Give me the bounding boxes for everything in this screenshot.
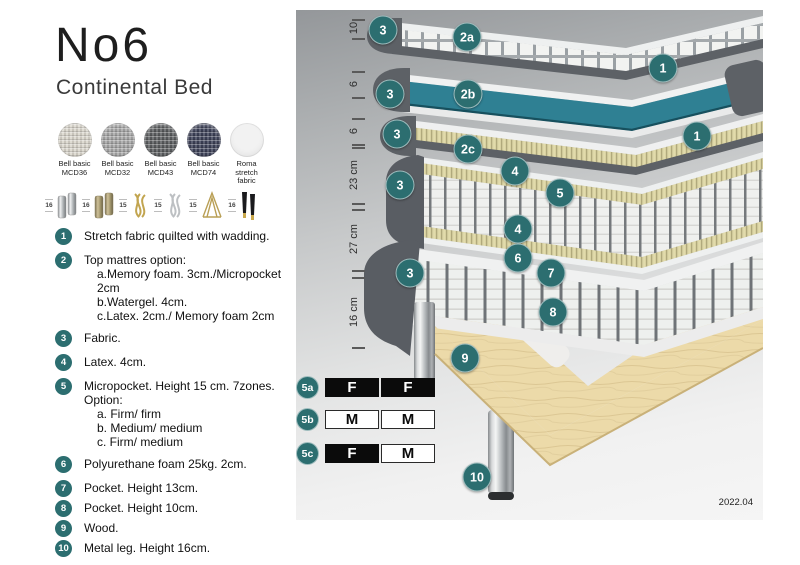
leg-height-label: 16 bbox=[82, 197, 90, 214]
legend-item-9: 9 Wood. bbox=[55, 521, 297, 537]
fabric-swatch: Bell basicMCD32 bbox=[98, 123, 137, 186]
firmness-badge: 5b bbox=[296, 408, 319, 431]
legend-number-badge: 10 bbox=[55, 540, 72, 557]
legend-number-badge: 1 bbox=[55, 228, 72, 245]
firmness-cell: F bbox=[325, 444, 379, 463]
leg-option-twisted-gold: 15 bbox=[119, 189, 151, 221]
legend-subtext: c.Latex. 2cm./ Memory foam 2cm bbox=[84, 309, 297, 323]
leg-option-hairpin-gold: 15 bbox=[189, 189, 225, 221]
tapered-black-gold-legs-icon bbox=[238, 189, 260, 221]
callout-badge-fabric: 3 bbox=[396, 259, 425, 288]
dimension-label-leg: 16 cm bbox=[346, 284, 362, 340]
callout-badge-micropocket: 5 bbox=[546, 179, 575, 208]
legend-number-badge: 3 bbox=[55, 330, 72, 347]
legend-list: 1 Stretch fabric quilted with wadding. 2… bbox=[55, 229, 297, 565]
firmness-bar: F F bbox=[325, 378, 435, 397]
callout-badge-latex: 4 bbox=[504, 215, 533, 244]
callout-badge-fabric: 3 bbox=[386, 171, 415, 200]
legend-item-4: 4 Latex. 4cm. bbox=[55, 355, 297, 371]
legend-number-badge: 8 bbox=[55, 500, 72, 517]
cylinder-chrome-legs-icon bbox=[55, 189, 79, 221]
version-label: 2022.04 bbox=[719, 497, 753, 508]
firmness-cell: M bbox=[381, 444, 435, 463]
firmness-badge: 5a bbox=[296, 376, 319, 399]
fabric-swatch-row: Bell basicMCD36 Bell basicMCD32 Bell bas… bbox=[55, 123, 266, 186]
firmness-cell: F bbox=[381, 378, 435, 397]
legend-number-badge: 7 bbox=[55, 480, 72, 497]
fabric-swatch: Romastretch fabric bbox=[227, 123, 266, 186]
legend-item-5: 5 Micropocket. Height 15 cm. 7zones. Opt… bbox=[55, 379, 297, 449]
leg-height-label: 15 bbox=[154, 197, 162, 214]
firmness-badge: 5c bbox=[296, 442, 319, 465]
dimension-tick bbox=[352, 203, 365, 205]
legend-text: Stretch fabric quilted with wadding. bbox=[84, 229, 269, 243]
bed-diagram-panel: 10 6 6 23 cm 27 cm 16 cm 3 2a 1 3 2b 1 3… bbox=[296, 10, 763, 520]
legend-item-1: 1 Stretch fabric quilted with wadding. bbox=[55, 229, 297, 245]
leg-height-label: 16 bbox=[45, 197, 53, 214]
callout-badge-pocket-13: 7 bbox=[537, 259, 566, 288]
legend-item-6: 6 Polyurethane foam 25kg. 2cm. bbox=[55, 457, 297, 473]
callout-badge-wood: 9 bbox=[451, 344, 480, 373]
legend-subtext: b.Watergel. 4cm. bbox=[84, 295, 297, 309]
leg-height-label: 15 bbox=[189, 197, 197, 214]
dimension-label-mattress: 23 cm bbox=[346, 147, 362, 203]
legend-item-7: 7 Pocket. Height 13cm. bbox=[55, 481, 297, 497]
legend-text: Metal leg. Height 16cm. bbox=[84, 541, 210, 555]
legend-subtext: a.Memory foam. 3cm./Micropocket 2cm bbox=[84, 267, 297, 295]
legend-text: Fabric. bbox=[84, 331, 121, 345]
legend-item-2: 2 Top mattres option: a.Memory foam. 3cm… bbox=[55, 253, 297, 323]
legend-number-badge: 5 bbox=[55, 378, 72, 395]
callout-badge-fabric: 3 bbox=[376, 80, 405, 109]
page-title: No6 bbox=[55, 18, 152, 73]
leg-option-cylinder-brass: 16 bbox=[82, 189, 116, 221]
firmness-bar: M M bbox=[325, 410, 435, 429]
firmness-row-5c: 5c F M bbox=[296, 442, 435, 465]
callout-badge-pu-foam: 6 bbox=[504, 244, 533, 273]
dimension-tick bbox=[352, 347, 365, 349]
leg-height-label: 16 bbox=[228, 197, 236, 214]
dimension-tick bbox=[352, 277, 365, 279]
legend-text: Top mattres option: bbox=[84, 253, 297, 267]
callout-badge-2c: 2c bbox=[454, 135, 483, 164]
legend-text: Latex. 4cm. bbox=[84, 355, 146, 369]
fabric-code: MCD43 bbox=[148, 168, 173, 177]
legend-number-badge: 2 bbox=[55, 252, 72, 269]
legend-text: Polyurethane foam 25kg. 2cm. bbox=[84, 457, 247, 471]
callout-badge-metal-leg: 10 bbox=[463, 463, 492, 492]
fabric-code: stretch fabric bbox=[235, 168, 258, 186]
cylinder-brass-legs-icon bbox=[92, 189, 116, 221]
leg-option-row: 16 16 15 15 15 bbox=[45, 189, 260, 221]
fabric-swatch-circle bbox=[101, 123, 135, 157]
fabric-code: MCD32 bbox=[105, 168, 130, 177]
leg-option-tapered-black-gold: 16 bbox=[228, 189, 260, 221]
callout-badge-stretch-1: 1 bbox=[649, 54, 678, 83]
fabric-swatch: Bell basicMCD43 bbox=[141, 123, 180, 186]
twisted-chrome-legs-icon bbox=[164, 189, 186, 221]
legend-text: Micropocket. Height 15 cm. 7zones. Optio… bbox=[84, 379, 297, 407]
fabric-swatch-circle bbox=[187, 123, 221, 157]
callout-badge-2a: 2a bbox=[453, 23, 482, 52]
legend-number-badge: 4 bbox=[55, 354, 72, 371]
leg-height-label: 15 bbox=[119, 197, 127, 214]
callout-badge-fabric: 3 bbox=[383, 120, 412, 149]
fabric-code: MCD74 bbox=[191, 168, 216, 177]
leg-option-cylinder-chrome: 16 bbox=[45, 189, 79, 221]
legend-text: Pocket. Height 10cm. bbox=[84, 501, 198, 515]
legend-subtext: a. Firm/ firm bbox=[84, 407, 297, 421]
dimension-tick bbox=[352, 270, 365, 272]
callout-badge-fabric: 3 bbox=[369, 16, 398, 45]
callout-badge-2b: 2b bbox=[454, 80, 483, 109]
page-subtitle: Continental Bed bbox=[56, 76, 213, 100]
legend-subtext: c. Firm/ medium bbox=[84, 435, 297, 449]
fabric-swatch-circle bbox=[144, 123, 178, 157]
firmness-bar: F M bbox=[325, 444, 435, 463]
firmness-cell: F bbox=[325, 378, 379, 397]
firmness-cell: M bbox=[381, 410, 435, 429]
legend-subtext: b. Medium/ medium bbox=[84, 421, 297, 435]
fabric-code: MCD36 bbox=[62, 168, 87, 177]
leg-option-twisted-chrome: 15 bbox=[154, 189, 186, 221]
legend-item-8: 8 Pocket. Height 10cm. bbox=[55, 501, 297, 517]
firmness-row-5a: 5a F F bbox=[296, 376, 435, 399]
dimension-label-base: 27 cm bbox=[346, 211, 362, 267]
firmness-row-5b: 5b M M bbox=[296, 408, 435, 431]
legend-number-badge: 6 bbox=[55, 456, 72, 473]
fabric-swatch-circle bbox=[230, 123, 264, 157]
firmness-cell: M bbox=[325, 410, 379, 429]
callout-badge-pocket-10: 8 bbox=[539, 298, 568, 327]
fabric-swatch: Bell basicMCD74 bbox=[184, 123, 223, 186]
legend-item-3: 3 Fabric. bbox=[55, 331, 297, 347]
dimension-label-topper: 10 bbox=[346, 10, 362, 56]
legend-item-10: 10 Metal leg. Height 16cm. bbox=[55, 541, 297, 557]
callout-badge-stretch-1: 1 bbox=[683, 122, 712, 151]
twisted-gold-legs-icon bbox=[129, 189, 151, 221]
fabric-swatch: Bell basicMCD36 bbox=[55, 123, 94, 186]
legend-number-badge: 9 bbox=[55, 520, 72, 537]
legend-text: Pocket. Height 13cm. bbox=[84, 481, 198, 495]
callout-badge-latex: 4 bbox=[501, 157, 530, 186]
metal-leg-left bbox=[414, 302, 435, 386]
fabric-swatch-circle bbox=[58, 123, 92, 157]
topper-layer-2a bbox=[367, 16, 763, 80]
hairpin-gold-legs-icon bbox=[199, 189, 225, 221]
